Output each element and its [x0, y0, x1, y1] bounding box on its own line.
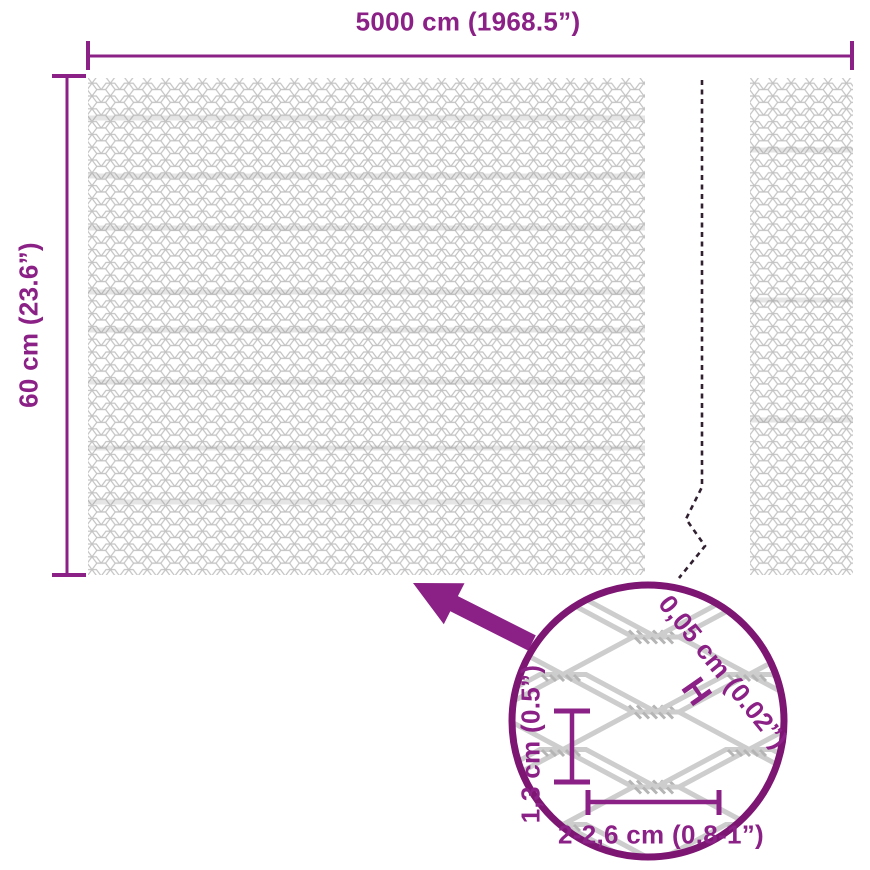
zoom-arrow-icon [413, 583, 536, 651]
mesh-panel-right [750, 78, 853, 575]
mesh-panel-main [88, 78, 645, 575]
cell-height-label: 1,3 cm (0.5”) [516, 665, 547, 824]
width-dimension-line [88, 41, 852, 70]
height-dimension-label: 60 cm (23.6”) [14, 242, 45, 408]
break-line [679, 80, 705, 578]
height-dimension-line [52, 76, 86, 575]
cell-width-label: 2-2,6 cm (0.8-1”) [558, 820, 764, 851]
width-dimension-label: 5000 cm (1968.5”) [356, 7, 581, 38]
diagram-canvas [0, 0, 870, 870]
product-dimension-diagram: 5000 cm (1968.5”) 60 cm (23.6”) 0,05 cm … [0, 0, 870, 870]
